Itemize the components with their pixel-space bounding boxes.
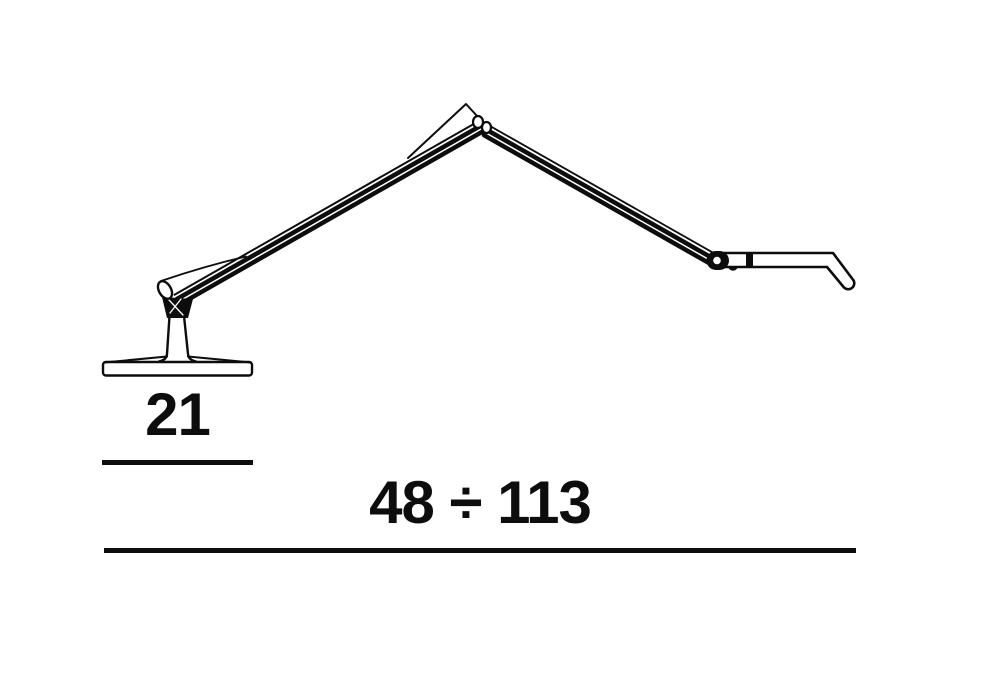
lamp-head-divider (746, 253, 753, 269)
lamp-head (707, 251, 855, 289)
lamp-head-pivot (713, 257, 721, 265)
lamp-lower-arm (161, 104, 485, 304)
lamp-head-switch (728, 267, 739, 271)
dimension-line-base-width (102, 460, 253, 465)
dimension-label-base-width: 21 (102, 386, 253, 446)
lamp-stem (159, 316, 196, 362)
dimension-line-extension-range (104, 548, 856, 553)
lamp-upper-arm (484, 126, 717, 265)
lamp-line-drawing (0, 0, 1000, 700)
diagram-canvas: 21 48 ÷ 113 (0, 0, 1000, 700)
lamp-head-body (723, 253, 854, 289)
dimension-label-extension-range: 48 ÷ 113 (104, 473, 856, 535)
lamp-base (103, 357, 252, 376)
